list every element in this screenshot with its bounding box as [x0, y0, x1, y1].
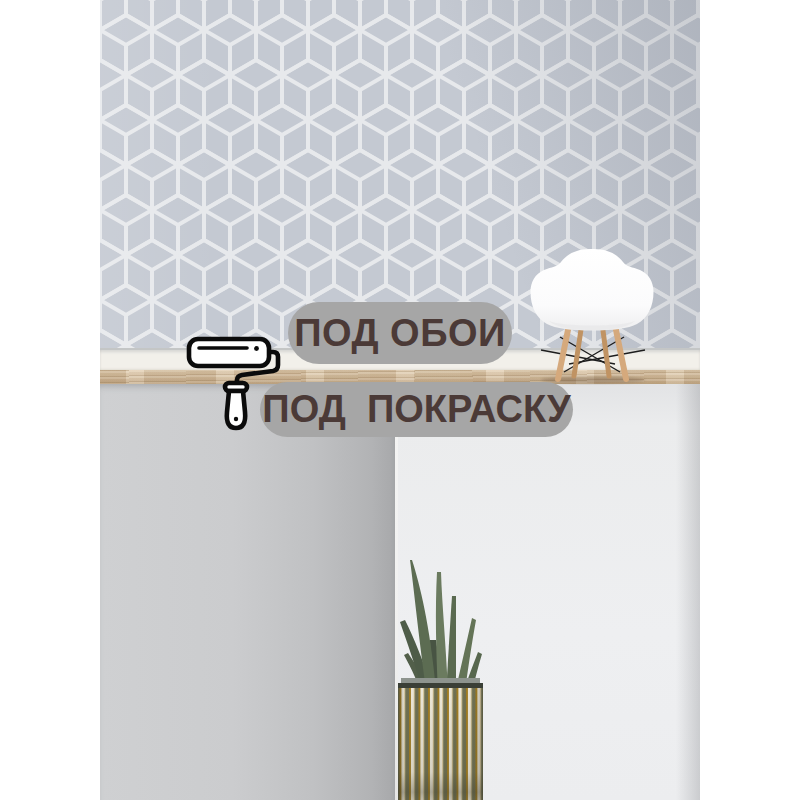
paint-roller-icon — [185, 335, 285, 435]
badge-wallpaper-use-label: ПОД ОБОИ — [294, 312, 506, 355]
chair-seat-shell — [531, 249, 654, 331]
chair-wire-braces — [541, 337, 645, 372]
chair-wood-legs — [558, 323, 626, 379]
badge-paint-use: ПОД ПОКРАСКУ — [260, 382, 573, 437]
product-photo: ПОД ОБОИ ПОД ПОКРАСКУ — [100, 0, 700, 800]
badge-wallpaper-use: ПОД ОБОИ — [288, 302, 512, 364]
aloe-plant-in-ribbed-pot — [390, 550, 490, 800]
badge-paint-use-label: ПОД ПОКРАСКУ — [262, 388, 570, 431]
lower-wall-left-panel — [100, 384, 395, 800]
white-shell-chair — [527, 243, 657, 385]
page-background: ПОД ОБОИ ПОД ПОКРАСКУ — [0, 0, 800, 800]
wall-right-edge-shadow — [676, 384, 700, 800]
ribbed-planter-pot — [398, 678, 483, 800]
